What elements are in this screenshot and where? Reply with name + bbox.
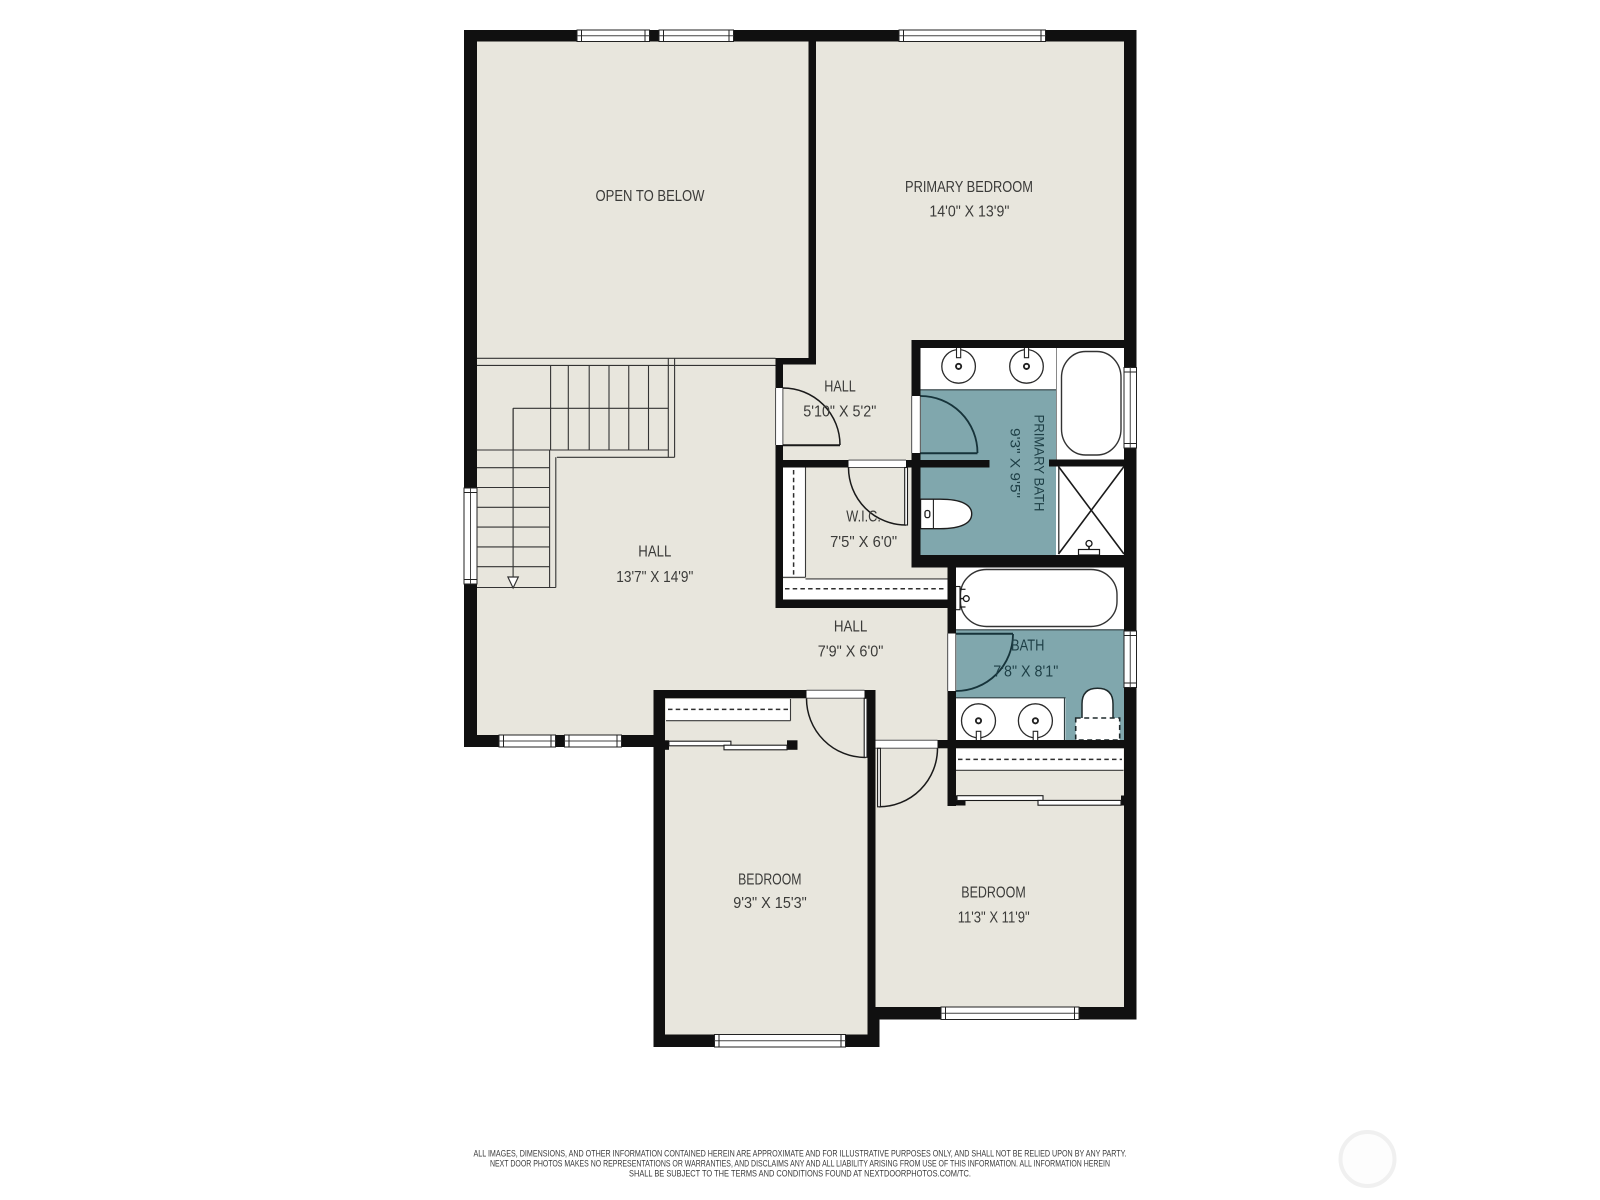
svg-text:7'5" X 6'0": 7'5" X 6'0" (830, 534, 897, 551)
svg-text:14'0" X 13'9": 14'0" X 13'9" (929, 203, 1009, 220)
svg-text:BEDROOM: BEDROOM (738, 871, 801, 888)
svg-text:BATH: BATH (1011, 638, 1044, 655)
svg-text:HALL: HALL (638, 543, 671, 560)
svg-text:NEXT DOOR PHOTOS MAKES NO REPR: NEXT DOOR PHOTOS MAKES NO REPRESENTATION… (490, 1159, 1110, 1169)
svg-text:7'8" X 8'1": 7'8" X 8'1" (993, 663, 1058, 680)
svg-text:9'3" X 9'5": 9'3" X 9'5" (1008, 428, 1024, 498)
svg-text:7'9" X 6'0": 7'9" X 6'0" (818, 643, 884, 660)
svg-text:ALL IMAGES, DIMENSIONS, AND OT: ALL IMAGES, DIMENSIONS, AND OTHER INFORM… (474, 1149, 1127, 1159)
svg-text:13'7" X 14'9": 13'7" X 14'9" (616, 569, 693, 586)
svg-text:OPEN TO BELOW: OPEN TO BELOW (596, 188, 705, 205)
svg-text:11'3" X 11'9": 11'3" X 11'9" (958, 910, 1030, 927)
svg-text:PRIMARY BEDROOM: PRIMARY BEDROOM (905, 179, 1033, 196)
svg-text:SHALL BE SUBJECT TO THE TERMS: SHALL BE SUBJECT TO THE TERMS AND CONDIT… (629, 1168, 971, 1178)
svg-text:5'10" X 5'2": 5'10" X 5'2" (803, 403, 876, 420)
svg-text:BEDROOM: BEDROOM (961, 884, 1026, 901)
svg-text:HALL: HALL (834, 618, 868, 635)
svg-text:9'3" X 15'3": 9'3" X 15'3" (733, 895, 807, 912)
svg-text:HALL: HALL (824, 379, 856, 396)
svg-text:W.I.C.: W.I.C. (846, 509, 881, 526)
svg-text:PRIMARY BATH: PRIMARY BATH (1032, 415, 1048, 512)
